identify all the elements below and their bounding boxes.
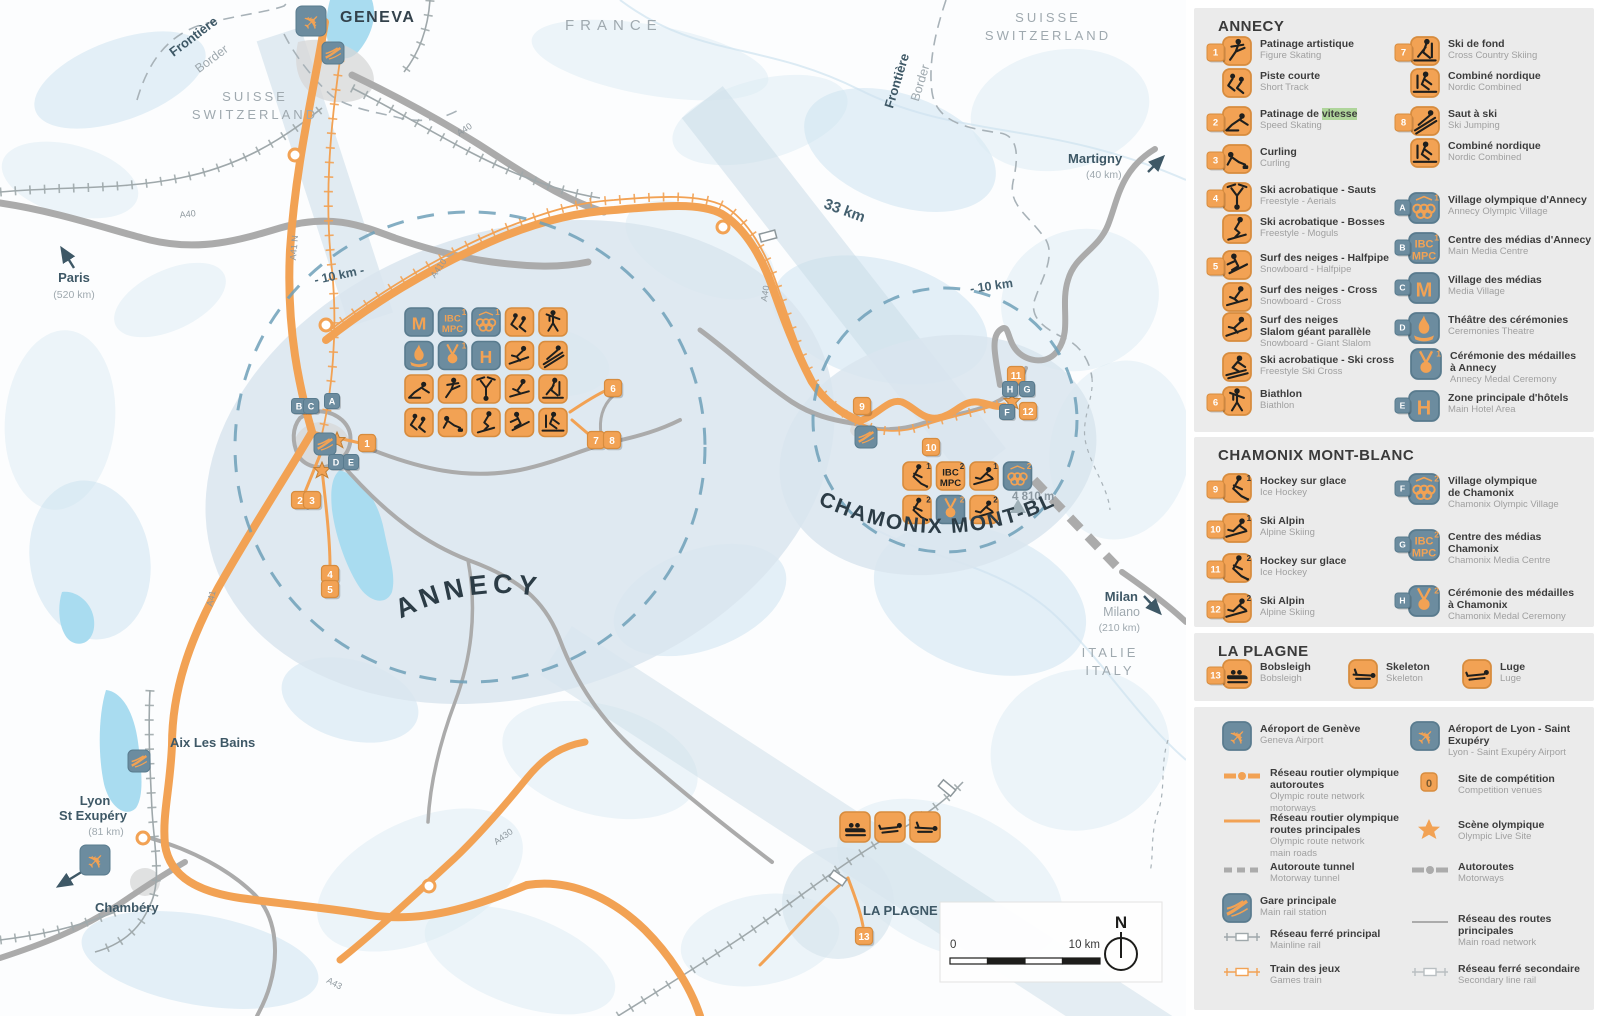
- venue-icon-skeleton: [910, 812, 940, 842]
- legend-item-text: Réseau routier olympiqueautoroutesOlympi…: [1270, 767, 1399, 814]
- legend-item-text: Combiné nordiqueNordic Combined: [1448, 140, 1541, 164]
- xc-icon: [1410, 36, 1440, 71]
- legend-label-fr: Piste courte: [1260, 70, 1320, 82]
- venue-icon-ibcmpc: IBCMPC1: [439, 308, 467, 336]
- venue-icon-rings: 1: [472, 308, 500, 336]
- legend-label-en: Speed Skating: [1260, 120, 1357, 132]
- marker-E: E: [344, 455, 361, 472]
- legend-label-en: Nordic Combined: [1448, 152, 1541, 164]
- legend-item-text: Train des jeuxGames train: [1270, 963, 1340, 987]
- marker-A: A: [325, 394, 342, 411]
- venue-icon-xc: [539, 375, 567, 403]
- legend-item-line-mwy: AutoroutesMotorways: [1394, 859, 1514, 886]
- venue-icon-rings: 2: [1004, 462, 1032, 490]
- legend-section-title: LA PLAGNE: [1218, 643, 1309, 660]
- legend-item-figure: 1Patinage artistiqueFigure Skating: [1206, 36, 1354, 71]
- ibcmpc-icon: IBCMPC1: [1408, 232, 1440, 269]
- legend-label-en: Motorways: [1458, 873, 1514, 885]
- legend-label-fr: Autoroutes: [1458, 861, 1514, 873]
- svg-text:1: 1: [1436, 349, 1441, 359]
- legend-item-halfpipe: 5Surf des neiges - HalfpipeSnowboard - H…: [1206, 250, 1389, 285]
- legend-label-fr: Site de compétition: [1458, 773, 1555, 785]
- label-suisse1: SUISSE: [222, 89, 288, 104]
- legend-item-text: Cérémonie des médaillesà ChamonixChamoni…: [1448, 587, 1574, 623]
- svg-text:1: 1: [926, 462, 931, 471]
- legend-item-line-tunnel: Autoroute tunnelMotorway tunnel: [1206, 859, 1355, 886]
- legend-section-annecy: ANNECY1Patinage artistiqueFigure Skating…: [1194, 8, 1594, 432]
- legend-item-text: CurlingCurling: [1260, 146, 1297, 170]
- svg-text:N: N: [1115, 913, 1127, 932]
- svg-text:MPC: MPC: [1412, 250, 1436, 262]
- marker-1: 1: [359, 435, 378, 454]
- legend-item-text: Ski acrobatique - BossesFreestyle - Mogu…: [1260, 216, 1385, 240]
- line-oly-road-icon: [1222, 810, 1262, 837]
- svg-text:IBC: IBC: [942, 467, 959, 478]
- legend-label-fr: Cérémonie des médaillesà Annecy: [1450, 350, 1576, 374]
- legend-label-fr: Ski de fond: [1448, 38, 1537, 50]
- number-badge: 2: [1206, 113, 1226, 138]
- svg-text:D: D: [333, 458, 340, 468]
- svg-text:13: 13: [1210, 671, 1221, 682]
- legend-item-text: Ski acrobatique - Ski crossFreestyle Ski…: [1260, 354, 1394, 378]
- legend-item-moguls: Ski acrobatique - BossesFreestyle - Mogu…: [1206, 214, 1385, 249]
- svg-text:1: 1: [495, 308, 500, 317]
- airport-icon: ✈: [1222, 721, 1252, 756]
- legend-label-en: Games train: [1270, 975, 1340, 987]
- legend-item-hockey: 91Hockey sur glaceIce Hockey: [1206, 473, 1346, 508]
- legend-label-fr: Combiné nordique: [1448, 140, 1541, 152]
- legend-label-en: Chamonix Olympic Village: [1448, 499, 1559, 511]
- marker-H: H: [1003, 382, 1020, 399]
- svg-text:A: A: [329, 397, 336, 407]
- legend-item-text: Réseau ferré secondaireSecondary line ra…: [1458, 963, 1580, 987]
- legend-item-xc: 7Ski de fondCross Country Skiing: [1394, 36, 1537, 71]
- legend-item-line-oly-road: Réseau routier olympiqueroutes principal…: [1206, 810, 1399, 859]
- legend-label-en: Main Media Centre: [1448, 246, 1591, 258]
- svg-text:11: 11: [1210, 565, 1221, 576]
- legend-item-text: SkeletonSkeleton: [1386, 661, 1430, 685]
- svg-text:2: 2: [1027, 462, 1032, 471]
- legend-item-airport: ✈Aéroport de Lyon - Saint ExupéryLyon - …: [1394, 721, 1594, 759]
- legend-item-venue-sq: 0Site de compétitionCompetition venues: [1394, 771, 1555, 798]
- legend-label-en: Freestyle Ski Cross: [1260, 366, 1394, 378]
- line-rail-games-icon: [1222, 961, 1262, 988]
- venue-icon-figure: [439, 375, 467, 403]
- legend-label-en: Competition venues: [1458, 785, 1555, 797]
- label-a40-west: A40: [179, 208, 196, 220]
- legend-label-fr: Réseau routier olympiqueautoroutes: [1270, 767, 1399, 791]
- svg-text:0: 0: [1426, 778, 1432, 790]
- legend-item-nordic: Combiné nordiqueNordic Combined: [1394, 68, 1541, 103]
- legend-label-fr: Village des médias: [1448, 274, 1542, 286]
- svg-text:4: 4: [327, 570, 333, 581]
- legend-item-flame: DThéâtre des cérémoniesCeremonies Theatr…: [1394, 312, 1568, 349]
- figure-icon: [1222, 36, 1252, 71]
- legend-label-en: Figure Skating: [1260, 50, 1354, 62]
- venue-icon-hockey: 1: [903, 462, 931, 490]
- svg-text:12: 12: [1022, 407, 1034, 418]
- legend-item-text: Centre des médiasChamonixChamonix Media …: [1448, 531, 1550, 567]
- legend-section-chamonix-mont-blanc: CHAMONIX MONT-BLANC91Hockey sur glaceIce…: [1194, 437, 1594, 627]
- legend-item-text: Hockey sur glaceIce Hockey: [1260, 555, 1346, 579]
- olympic-bid-map-page: ✈✈MIBCMPC111H1IBCMPC21222212345678910111…: [0, 0, 1600, 1016]
- legend-item-text: Ski de fondCross Country Skiing: [1448, 38, 1537, 62]
- legend-item-jump: 8Saut à skiSki Jumping: [1394, 106, 1500, 141]
- legend-item-curling: 3CurlingCurling: [1206, 144, 1297, 179]
- legend-label-fr: Surf des neiges - Halfpipe: [1260, 252, 1389, 264]
- legend-label-en: Olympic route networkmain roads: [1270, 836, 1399, 859]
- alpine-icon: 2: [1222, 593, 1252, 628]
- letter-badge: H: [1394, 592, 1412, 615]
- medal-icon: 1: [1410, 348, 1442, 385]
- legend-label-en: Ice Hockey: [1260, 487, 1346, 499]
- legend-item-aerials: 4Ski acrobatique - SautsFreestyle - Aeri…: [1206, 182, 1376, 217]
- label-italie: ITALIE: [1082, 645, 1139, 660]
- legend-label-fr: Ski Alpin: [1260, 515, 1315, 527]
- svg-text:6: 6: [610, 384, 616, 395]
- legend-label-en: Lyon - Saint Exupéry Airport: [1448, 747, 1594, 759]
- rings-icon: 1: [1408, 192, 1440, 229]
- halfpipe-icon: [1222, 250, 1252, 285]
- label-switzerland2: SWITZERLAND: [985, 28, 1111, 43]
- number-badge: 9: [1206, 480, 1226, 505]
- legend-label-fr: Skeleton: [1386, 661, 1430, 673]
- svg-text:G: G: [1399, 540, 1406, 550]
- scale-max: 10 km: [1069, 939, 1100, 951]
- legend-label-fr: Centre des médiasChamonix: [1448, 531, 1550, 555]
- venue-icon-gs: [506, 342, 534, 370]
- svg-text:1: 1: [1247, 514, 1252, 523]
- station-icon: [1222, 893, 1252, 928]
- legend-label-en: Geneva Airport: [1260, 735, 1360, 747]
- label-italy: ITALY: [1085, 663, 1134, 678]
- legend-label-en: Freestyle - Moguls: [1260, 228, 1385, 240]
- legend-item-text: Ski AlpinAlpine Skiing: [1260, 595, 1315, 619]
- legend-item-text: Ski acrobatique - SautsFreestyle - Aeria…: [1260, 184, 1376, 208]
- svg-text:F: F: [1004, 408, 1010, 418]
- legend-item-rings: F2Village olympiquede ChamonixChamonix O…: [1394, 473, 1559, 511]
- label-geneva: GENEVA: [340, 9, 415, 26]
- legend-item-text: Saut à skiSki Jumping: [1448, 108, 1500, 132]
- svg-text:2: 2: [1247, 554, 1252, 563]
- letter-badge: A: [1394, 199, 1412, 222]
- label-aix-les-bains: Aix Les Bains: [170, 735, 255, 750]
- alpine-icon: 1: [1222, 513, 1252, 548]
- label-switzerland1: SWITZERLAND: [192, 107, 318, 122]
- marker-8: 8: [604, 432, 623, 451]
- svg-text:MPC: MPC: [1412, 547, 1436, 559]
- venue-icon-shorttrack: [506, 308, 534, 336]
- legend-label-en: Nordic Combined: [1448, 82, 1541, 94]
- mtext-icon: M: [1408, 272, 1440, 309]
- legend-label-fr: Aéroport de Genève: [1260, 723, 1360, 735]
- legend-label-fr: Ski Alpin: [1260, 595, 1315, 607]
- legend-item-line-rail-main: Réseau ferré principalMainline rail: [1206, 926, 1380, 953]
- venue-icon-medal: 1: [439, 342, 467, 370]
- bob-icon: [1222, 659, 1252, 694]
- svg-text:3: 3: [1213, 156, 1218, 167]
- star-icon: [1410, 817, 1450, 844]
- letter-badge: C: [1394, 279, 1412, 302]
- legend-item-luge: LugeLuge: [1446, 659, 1525, 694]
- marker-12: 12: [1020, 403, 1039, 422]
- number-badge: 5: [1206, 257, 1226, 282]
- venue-icon-alpine: 1: [970, 462, 998, 490]
- legend-item-medal: H2Cérémonie des médaillesà ChamonixChamo…: [1394, 585, 1574, 623]
- svg-text:IBC: IBC: [1415, 535, 1434, 547]
- legend-item-line-rail-sec: Réseau ferré secondaireSecondary line ra…: [1394, 961, 1580, 988]
- legend-label-en: Main Hotel Area: [1448, 404, 1568, 416]
- svg-text:1: 1: [1247, 474, 1252, 483]
- legend-label-fr: Autoroute tunnel: [1270, 861, 1355, 873]
- svg-text:A: A: [1399, 203, 1405, 213]
- legend-item-htext: EHZone principale d'hôtelsMain Hotel Are…: [1394, 390, 1568, 427]
- moguls-icon: [1222, 214, 1252, 249]
- marker-5: 5: [322, 581, 341, 600]
- scale-bar-panel: 010 kmN: [940, 902, 1162, 982]
- legend-panel: ANNECY1Patinage artistiqueFigure Skating…: [1186, 0, 1600, 1016]
- legend-label-fr: Biathlon: [1260, 388, 1302, 400]
- legend-label-fr: Réseau ferré principal: [1270, 928, 1380, 940]
- legend-item-rings: A1Village olympique d'AnnecyAnnecy Olymp…: [1394, 192, 1587, 229]
- svg-text:H: H: [1417, 398, 1431, 420]
- marker-6: 6: [605, 380, 624, 399]
- svg-text:1: 1: [1434, 233, 1439, 243]
- number-badge: 4: [1206, 189, 1226, 214]
- svg-text:9: 9: [1213, 485, 1218, 496]
- label-lyon: Lyon: [80, 793, 111, 808]
- legend-item-text: Piste courteShort Track: [1260, 70, 1320, 94]
- legend-label-fr: Zone principale d'hôtels: [1448, 392, 1568, 404]
- legend-label-fr: Ski acrobatique - Ski cross: [1260, 354, 1394, 366]
- label-lyon-km: (81 km): [88, 826, 124, 838]
- venue-icon-ibcmpc: IBCMPC2: [937, 462, 965, 490]
- map-svg: ✈✈MIBCMPC111H1IBCMPC21222212345678910111…: [0, 0, 1186, 1016]
- legend-item-text: Autoroute tunnelMotorway tunnel: [1270, 861, 1355, 885]
- letter-badge: F: [1394, 480, 1412, 503]
- hockey-icon: 1: [1222, 473, 1252, 508]
- venue-icon-flame: [405, 342, 433, 370]
- skeleton-icon: [1348, 659, 1378, 694]
- svg-text:2: 2: [926, 496, 931, 505]
- legend-label-fr: Réseau ferré secondaire: [1458, 963, 1580, 975]
- number-badge: 8: [1394, 113, 1414, 138]
- legend-item-text: Village olympiquede ChamonixChamonix Oly…: [1448, 475, 1559, 511]
- svg-text:F: F: [1400, 484, 1405, 494]
- label-suisse2: SUISSE: [1015, 10, 1081, 25]
- legend-item-text: Surf des neiges - HalfpipeSnowboard - Ha…: [1260, 252, 1389, 276]
- svg-text:2: 2: [297, 496, 303, 507]
- legend-item-text: Réseau ferré principalMainline rail: [1270, 928, 1380, 952]
- svg-text:10: 10: [925, 443, 937, 454]
- svg-text:2: 2: [1434, 530, 1439, 540]
- gs-icon: [1222, 312, 1252, 347]
- svg-text:4: 4: [1213, 194, 1219, 205]
- line-oly-mwy-icon: [1222, 765, 1262, 792]
- marker-10: 10: [923, 439, 942, 458]
- number-badge: 1: [1206, 43, 1226, 68]
- venue-icon-halfpipe: [506, 409, 534, 437]
- marker-3: 3: [304, 492, 323, 511]
- svg-text:2: 2: [960, 496, 965, 505]
- svg-text:13: 13: [858, 932, 870, 943]
- legend-item-line-oly-mwy: Réseau routier olympiqueautoroutesOlympi…: [1206, 765, 1399, 814]
- line-road-icon: [1410, 911, 1450, 938]
- scale-zero: 0: [950, 939, 956, 951]
- legend-item-text: Village des médiasMedia Village: [1448, 274, 1542, 298]
- svg-text:H: H: [1399, 596, 1405, 606]
- legend-label-fr: Hockey sur glace: [1260, 555, 1346, 567]
- venue-icon-htext: H: [472, 342, 500, 370]
- number-badge: 11: [1206, 560, 1226, 585]
- venue-icon-moguls: [472, 409, 500, 437]
- venue-icon-speed: [405, 375, 433, 403]
- svg-text:MPC: MPC: [442, 324, 463, 335]
- biathlon-icon: [1222, 386, 1252, 421]
- luge-icon: [1462, 659, 1492, 694]
- marker-13: 13: [856, 928, 875, 947]
- hockey-icon: 2: [1222, 553, 1252, 588]
- label-la-plagne: LA PLAGNE: [863, 903, 938, 918]
- svg-text:2: 2: [993, 496, 998, 505]
- svg-text:1: 1: [462, 308, 467, 317]
- skicross-icon: [1222, 352, 1252, 387]
- legend-label-fr: Bobsleigh: [1260, 661, 1311, 673]
- legend-section-transport: ✈Aéroport de GenèveGeneva AirportRéseau …: [1194, 707, 1594, 1010]
- legend-label-en: Bobsleigh: [1260, 673, 1311, 685]
- svg-text:12: 12: [1210, 605, 1221, 616]
- legend-item-text: Ski AlpinAlpine Skiing: [1260, 515, 1315, 539]
- htext-icon: H: [1408, 390, 1440, 427]
- label-chambery: Chambéry: [95, 900, 159, 915]
- legend-item-alpine: 101Ski AlpinAlpine Skiing: [1206, 513, 1315, 548]
- marker-F: F: [1000, 405, 1017, 422]
- legend-item-bob: 13BobsleighBobsleigh: [1206, 659, 1311, 694]
- legend-label-fr: Saut à ski: [1448, 108, 1500, 120]
- marker-C: C: [304, 399, 321, 416]
- label-milano: Milano: [1103, 605, 1140, 619]
- legend-label-en: Snowboard - Cross: [1260, 296, 1377, 308]
- legend-label-fr: Patinage de vitesse: [1260, 108, 1357, 120]
- legend-label-en: Ice Hockey: [1260, 567, 1346, 579]
- svg-text:B: B: [1399, 243, 1405, 253]
- legend-label-en: Alpine Skiing: [1260, 527, 1315, 539]
- legend-item-hockey: 112Hockey sur glaceIce Hockey: [1206, 553, 1346, 588]
- legend-label-en: Chamonix Media Centre: [1448, 555, 1550, 567]
- legend-item-text: Hockey sur glaceIce Hockey: [1260, 475, 1346, 499]
- svg-text:2: 2: [1247, 594, 1252, 603]
- venue-icon-bob: [840, 812, 870, 842]
- ibcmpc-icon: IBCMPC2: [1408, 529, 1440, 566]
- label-milan: Milan: [1105, 589, 1138, 604]
- venue-sq-icon: 0: [1410, 771, 1450, 798]
- legend-label-fr: Théâtre des cérémonies: [1448, 314, 1568, 326]
- legend-label-fr: Gare principale: [1260, 895, 1336, 907]
- la-plagne-grid: [840, 812, 940, 842]
- number-badge: 12: [1206, 600, 1226, 625]
- label-paris: Paris: [58, 270, 90, 285]
- svg-text:1: 1: [364, 439, 370, 450]
- legend-label-fr: Village olympiquede Chamonix: [1448, 475, 1559, 499]
- svg-text:M: M: [1416, 280, 1433, 302]
- svg-text:2: 2: [960, 462, 965, 471]
- line-mwy-icon: [1410, 859, 1450, 886]
- shorttrack-icon: [1222, 68, 1252, 103]
- svg-text:H: H: [480, 347, 493, 367]
- label-st-exupery: St Exupéry: [59, 808, 128, 823]
- legend-label-en: Annecy Olympic Village: [1448, 206, 1587, 218]
- airport-icon: ✈: [1410, 721, 1440, 756]
- legend-item-text: Réseau des routesprincipalesMain road ne…: [1458, 913, 1551, 949]
- legend-item-airport: ✈Aéroport de GenèveGeneva Airport: [1206, 721, 1360, 756]
- svg-text:11: 11: [1011, 371, 1022, 382]
- svg-text:7: 7: [593, 436, 599, 447]
- legend-label-en: Annecy Medal Ceremony: [1450, 374, 1576, 386]
- legend-section-title: CHAMONIX MONT-BLANC: [1218, 447, 1414, 464]
- legend-label-en: Secondary line rail: [1458, 975, 1580, 987]
- letter-badge: E: [1394, 397, 1412, 420]
- legend-label-en: Snowboard - Giant Slalom: [1260, 338, 1371, 350]
- legend-label-fr: Ski acrobatique - Bosses: [1260, 216, 1385, 228]
- svg-text:3: 3: [309, 496, 315, 507]
- legend-item-text: Combiné nordiqueNordic Combined: [1448, 70, 1541, 94]
- legend-item-text: Théâtre des cérémoniesCeremonies Theatre: [1448, 314, 1568, 338]
- legend-label-en: Freestyle - Aerials: [1260, 196, 1376, 208]
- legend-item-text: Aéroport de Lyon - Saint ExupéryLyon - S…: [1448, 723, 1594, 759]
- venue-icon-aerials: [472, 375, 500, 403]
- legend-label-fr: Scène olympique: [1458, 819, 1544, 831]
- legend-label-fr: Réseau routier olympiqueroutes principal…: [1270, 812, 1399, 836]
- svg-text:D: D: [1399, 323, 1405, 333]
- legend-label-en: Main road network: [1458, 937, 1551, 949]
- legend-label-fr: Centre des médias d'Annecy: [1448, 234, 1591, 246]
- svg-text:C: C: [308, 402, 315, 412]
- legend-item-medal: 1Cérémonie des médaillesà AnnecyAnnecy M…: [1394, 348, 1576, 386]
- legend-label-en: Chamonix Medal Ceremony: [1448, 611, 1574, 623]
- legend-label-fr: Curling: [1260, 146, 1297, 158]
- svg-text:5: 5: [1213, 262, 1219, 273]
- jump-icon: [1410, 106, 1440, 141]
- line-tunnel-icon: [1222, 859, 1262, 886]
- svg-text:1: 1: [1434, 193, 1439, 203]
- svg-text:E: E: [1400, 401, 1406, 411]
- svg-text:10: 10: [1210, 525, 1221, 536]
- legend-item-text: AutoroutesMotorways: [1458, 861, 1514, 885]
- legend-label-en: Cross Country Skiing: [1448, 50, 1537, 62]
- legend-item-text: Village olympique d'AnnecyAnnecy Olympic…: [1448, 194, 1587, 218]
- aerials-icon: [1222, 182, 1252, 217]
- legend-item-alpine: 122Ski AlpinAlpine Skiing: [1206, 593, 1315, 628]
- legend-label-en: Olympic Live Site: [1458, 831, 1544, 843]
- legend-label-en: Short Track: [1260, 82, 1320, 94]
- marker-9: 9: [854, 398, 873, 417]
- label-paris-km: (520 km): [53, 289, 94, 301]
- letter-badge: G: [1394, 536, 1412, 559]
- legend-label-fr: Village olympique d'Annecy: [1448, 194, 1587, 206]
- legend-item-ibcmpc: BIBCMPC1Centre des médias d'AnnecyMain M…: [1394, 232, 1591, 269]
- svg-text:6: 6: [1213, 398, 1218, 409]
- legend-label-en: Biathlon: [1260, 400, 1302, 412]
- legend-label-en: Main rail station: [1260, 907, 1336, 919]
- legend-item-nordic: Combiné nordiqueNordic Combined: [1394, 138, 1541, 173]
- legend-label-fr: Réseau des routesprincipales: [1458, 913, 1551, 937]
- flame-icon: [1408, 312, 1440, 349]
- number-badge: 10: [1206, 520, 1226, 545]
- legend-item-shorttrack: Piste courteShort Track: [1206, 68, 1320, 103]
- svg-text:IBC: IBC: [1415, 238, 1434, 250]
- legend-item-star: Scène olympiqueOlympic Live Site: [1394, 817, 1544, 844]
- svg-text:M: M: [412, 314, 427, 334]
